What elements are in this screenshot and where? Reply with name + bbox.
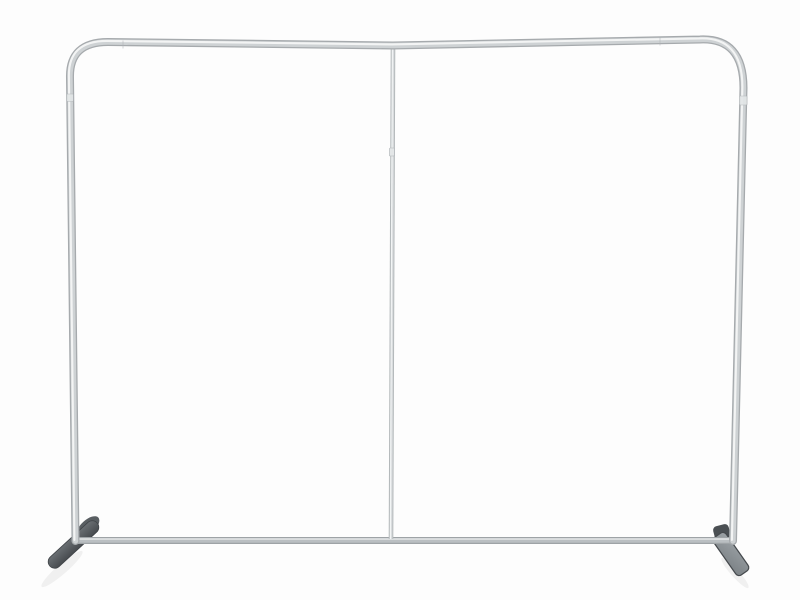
left-pole-joint [67,94,74,102]
center-pole-joint [389,148,394,156]
right-pole-joint [739,96,747,105]
backdrop-frame-photo [0,0,800,600]
frame-illustration [0,0,800,600]
bottom-bar [75,539,732,541]
background [0,0,800,600]
